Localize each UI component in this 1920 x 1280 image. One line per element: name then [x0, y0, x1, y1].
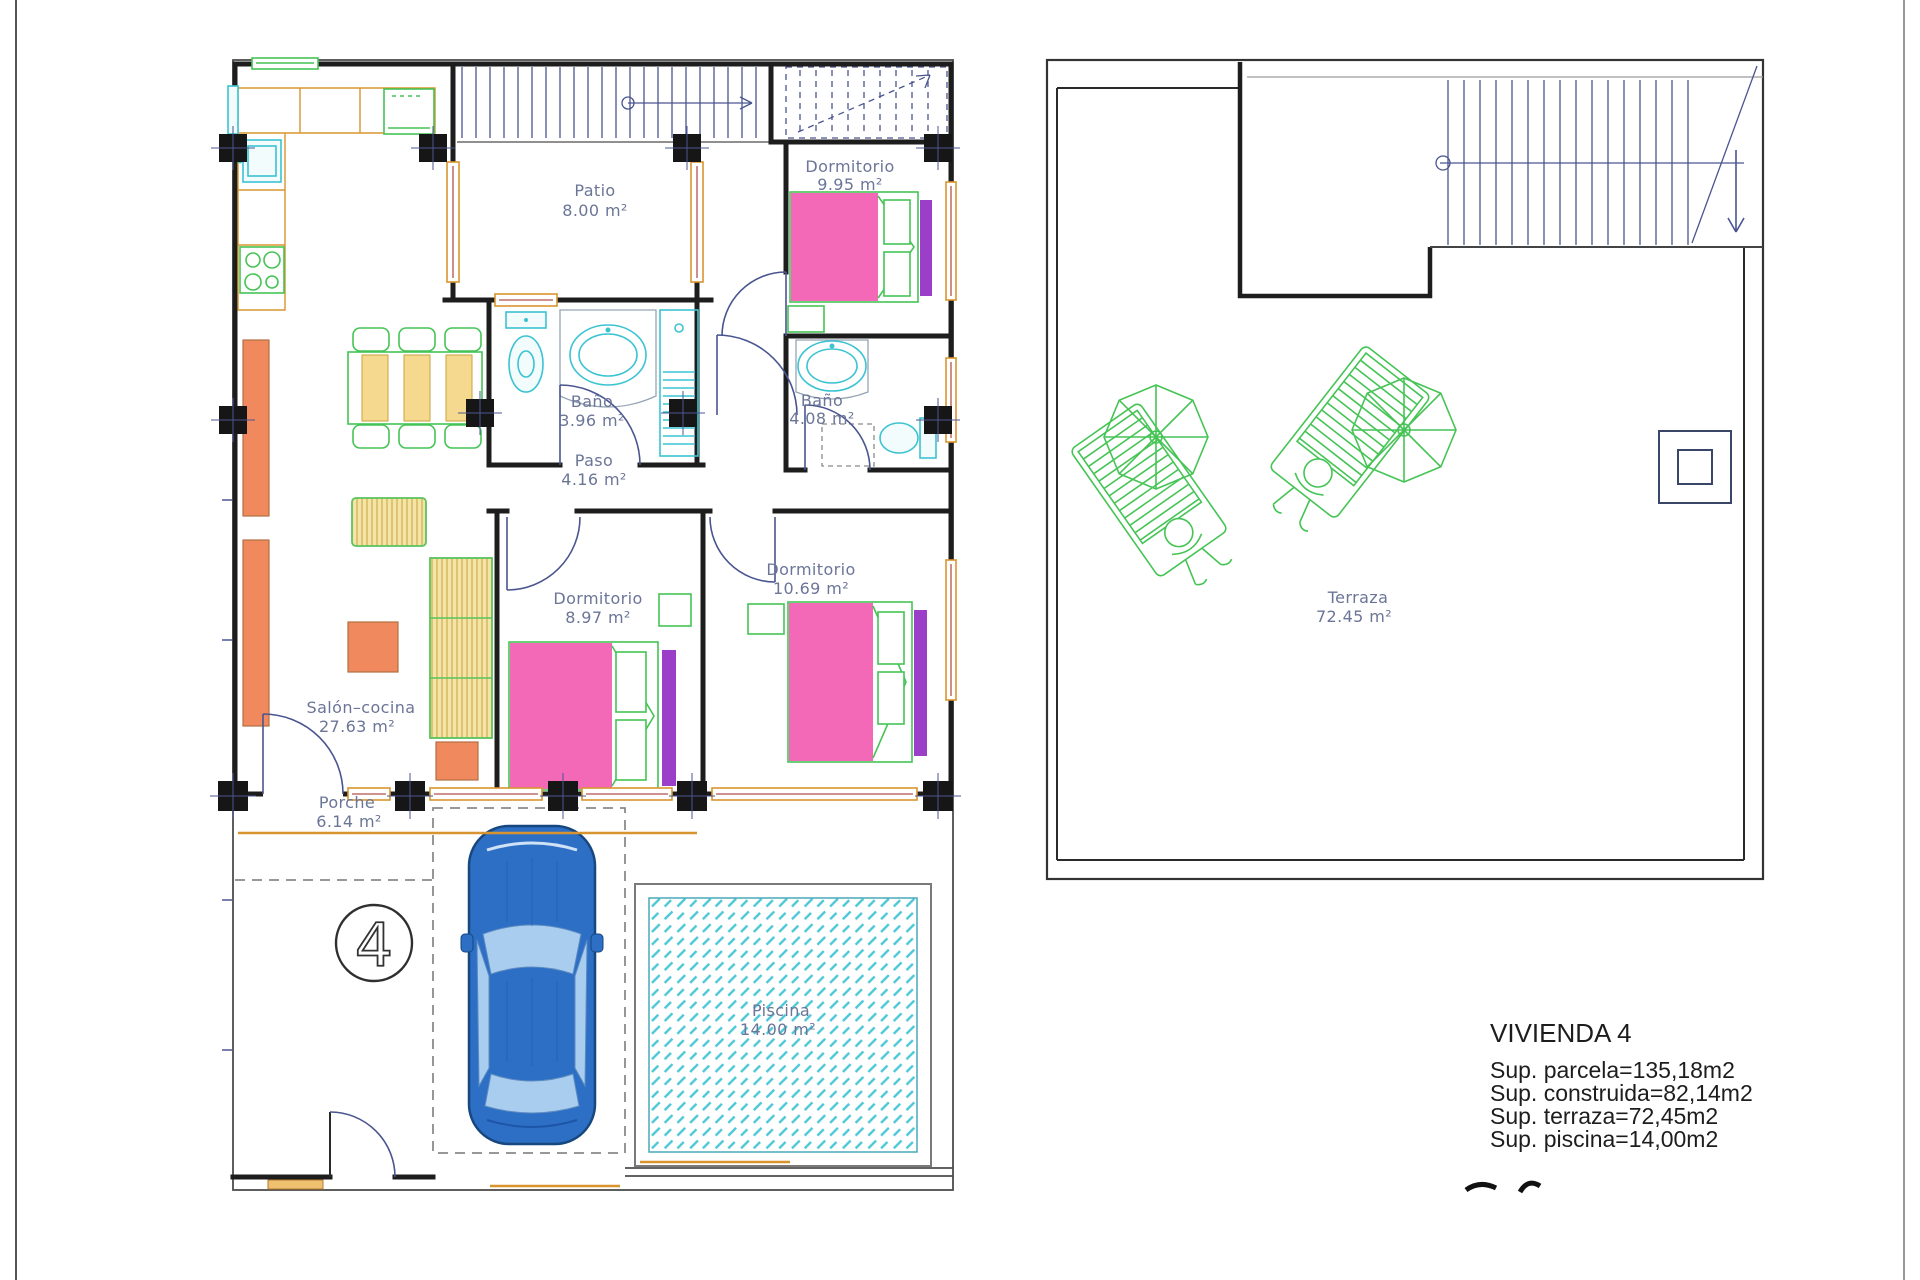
- room-label-dorm1-area: 9.95 m²: [817, 175, 883, 194]
- bed-runner: [920, 200, 932, 296]
- room-label-paso-name: Paso: [575, 451, 613, 470]
- room-label-paso-area: 4.16 m²: [561, 470, 627, 489]
- bed-mattress: [789, 603, 873, 761]
- ground-floor-plan: 4: [210, 58, 961, 1190]
- room-label-dorm3-area: 10.69 m²: [773, 579, 849, 598]
- room-label-dorm1-name: Dormitorio: [805, 157, 894, 176]
- sideboard-icon: [243, 540, 269, 726]
- nightstand-icon: [788, 306, 824, 332]
- room-label-bath2-name: Baño: [801, 391, 843, 410]
- summary-line: Sup. piscina=14,00m2: [1490, 1126, 1718, 1152]
- room-label-piscina-name: Piscina: [752, 1001, 810, 1020]
- room-label-dorm3-name: Dormitorio: [766, 560, 855, 579]
- room-label-bath1-area: 3.96 m²: [559, 411, 625, 430]
- room-label-patio-area: 8.00 m²: [562, 201, 628, 220]
- room-label-porche-area: 6.14 m²: [316, 812, 382, 831]
- chair-icon: [353, 425, 389, 448]
- summary-block: VIVIENDA 4 Sup. parcela=135,18m2 Sup. co…: [1466, 1018, 1753, 1192]
- floorplan-sheet: 4: [0, 0, 1920, 1280]
- room-label-dorm2-name: Dormitorio: [553, 589, 642, 608]
- pouf-icon: [436, 742, 478, 780]
- gate-door: [233, 1112, 433, 1189]
- chair-icon: [445, 328, 481, 351]
- unit-number-badge: 4: [336, 905, 412, 981]
- chair-icon: [399, 328, 435, 351]
- umbrella-icon: [1352, 378, 1456, 482]
- room-label-terraza-name: Terraza: [1327, 588, 1389, 607]
- chair-icon: [399, 425, 435, 448]
- room-label-porche-name: Porche: [319, 793, 375, 812]
- armchair-icon: [352, 498, 426, 546]
- unit-number: 4: [355, 911, 393, 981]
- coffee-table-icon: [348, 622, 398, 672]
- bed-runner: [662, 650, 676, 786]
- room-label-salon-area: 27.63 m²: [319, 717, 395, 736]
- room-label-salon-name: Salón–cocina: [307, 698, 416, 717]
- room-label-terraza-area: 72.45 m²: [1316, 607, 1392, 626]
- boundary-tick-marks: [222, 500, 232, 1050]
- signature-mark: [1466, 1183, 1540, 1192]
- room-label-bath1-name: Baño: [571, 392, 613, 411]
- sofa-icon: [430, 558, 492, 738]
- stairwell-void: [1242, 62, 1428, 294]
- umbrella-icon: [1104, 385, 1208, 489]
- room-label-patio-name: Patio: [574, 181, 615, 200]
- bed-mattress: [791, 193, 878, 301]
- nightstand-icon: [659, 594, 691, 626]
- bed-runner: [914, 610, 927, 756]
- nightstand-icon: [748, 604, 784, 634]
- bed-mattress: [510, 643, 612, 789]
- floorplan-drawing: 4: [0, 0, 1920, 1280]
- room-label-piscina-area: 14.00 m²: [740, 1020, 816, 1039]
- chair-icon: [353, 328, 389, 351]
- room-label-bath2-area: 4.08 m²: [789, 409, 855, 428]
- summary-title: VIVIENDA 4: [1490, 1018, 1632, 1048]
- chair-icon: [445, 425, 481, 448]
- terrace-plan: Terraza 72.45 m²: [1047, 60, 1763, 879]
- room-label-dorm2-area: 8.97 m²: [565, 608, 631, 627]
- car-icon: [461, 826, 603, 1144]
- dining-set: [348, 328, 482, 448]
